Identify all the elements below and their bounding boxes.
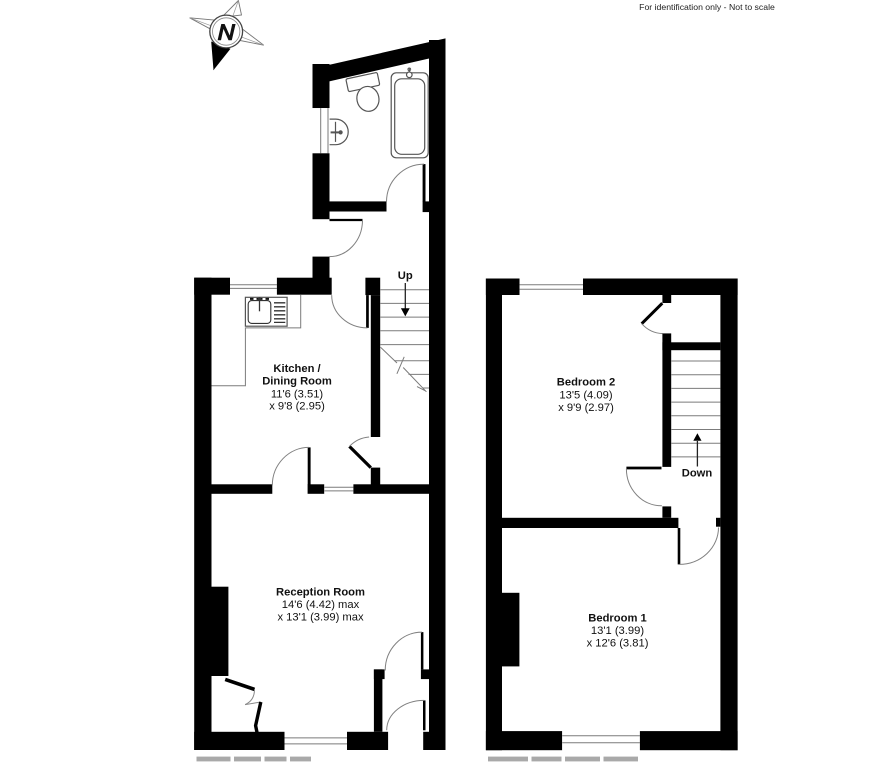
svg-text:x 9'8 (2.95): x 9'8 (2.95) bbox=[269, 401, 325, 413]
svg-text:x 13'1 (3.99) max: x 13'1 (3.99) max bbox=[277, 611, 363, 623]
svg-text:13'1 (3.99): 13'1 (3.99) bbox=[591, 625, 644, 637]
svg-text:14'6 (4.42) max: 14'6 (4.42) max bbox=[282, 599, 360, 611]
svg-text:Up: Up bbox=[398, 270, 413, 282]
svg-text:Bedroom 1: Bedroom 1 bbox=[588, 612, 646, 624]
svg-text:Down: Down bbox=[682, 468, 713, 480]
svg-text:x 9'9 (2.97): x 9'9 (2.97) bbox=[558, 402, 614, 414]
svg-text:x 12'6 (3.81): x 12'6 (3.81) bbox=[587, 638, 649, 650]
svg-text:Dining Room: Dining Room bbox=[262, 376, 332, 388]
svg-text:Bedroom 2: Bedroom 2 bbox=[557, 377, 615, 389]
svg-text:Reception Room: Reception Room bbox=[276, 587, 365, 599]
svg-text:11'6 (3.51): 11'6 (3.51) bbox=[271, 388, 324, 400]
svg-text:13'5 (4.09): 13'5 (4.09) bbox=[559, 390, 612, 402]
svg-text:For identification only - Not: For identification only - Not to scale bbox=[639, 2, 775, 12]
svg-text:Kitchen /: Kitchen / bbox=[273, 363, 320, 375]
